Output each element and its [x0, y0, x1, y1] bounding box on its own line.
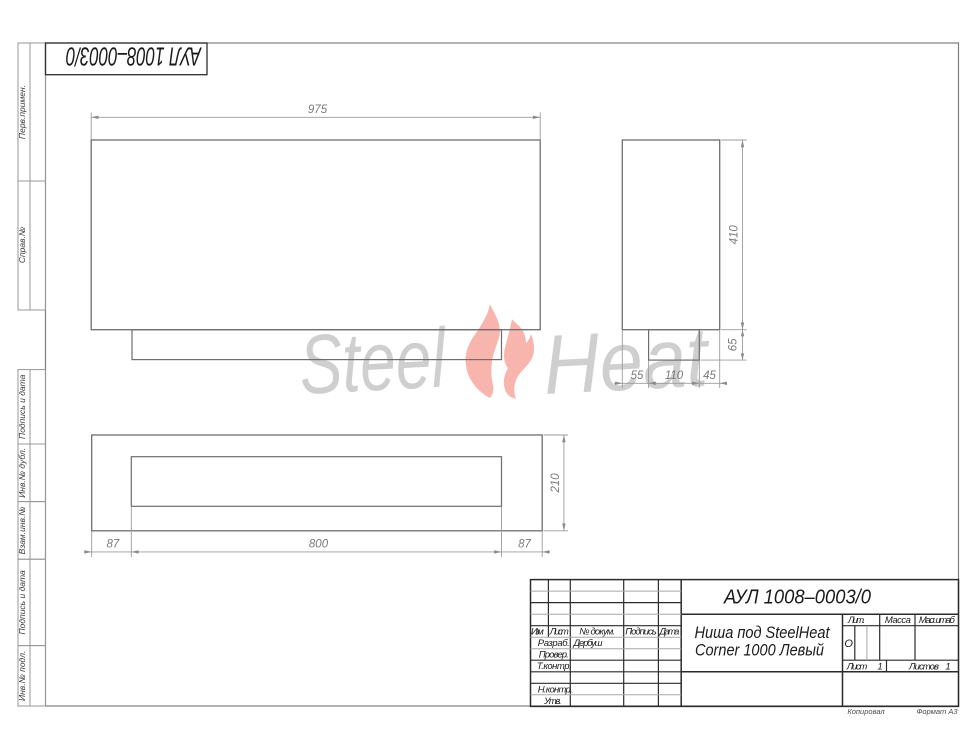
svg-text:1: 1 [877, 661, 882, 672]
svg-text:210: 210 [550, 473, 562, 494]
svg-text:Т.контр.: Т.контр. [537, 661, 572, 672]
svg-text:55: 55 [631, 370, 644, 382]
svg-text:Лист: Лист [549, 627, 569, 638]
svg-text:Дербуш: Дербуш [573, 638, 603, 649]
svg-text:87: 87 [107, 539, 120, 551]
svg-text:Лит.: Лит. [847, 615, 865, 626]
svg-text:Листов: Листов [908, 661, 939, 672]
svg-text:Масса: Масса [885, 615, 911, 626]
svg-text:Steel: Steel [297, 310, 449, 412]
svg-text:800: 800 [309, 539, 329, 551]
svg-text:975: 975 [308, 104, 328, 116]
svg-text:О: О [844, 638, 853, 650]
svg-text:№ докум.: № докум. [579, 627, 615, 638]
svg-text:Разраб.: Разраб. [538, 638, 570, 649]
svg-text:87: 87 [518, 539, 531, 551]
svg-text:Лист: Лист [846, 661, 868, 672]
svg-text:Перв.примен.: Перв.примен. [17, 85, 27, 139]
svg-text:Подпись и дата: Подпись и дата [17, 374, 27, 439]
svg-text:АУЛ 1008–0003/0: АУЛ 1008–0003/0 [66, 42, 203, 72]
svg-text:65: 65 [728, 338, 740, 351]
svg-text:410: 410 [729, 225, 741, 245]
svg-text:Н.контр.: Н.контр. [538, 684, 573, 695]
svg-text:Ниша под SteelHeat: Ниша под SteelHeat [695, 624, 831, 642]
svg-text:АУЛ 1008–0003/0: АУЛ 1008–0003/0 [722, 586, 871, 609]
svg-text:110: 110 [665, 370, 684, 382]
svg-text:Провер.: Провер. [539, 650, 569, 661]
svg-text:1: 1 [945, 661, 950, 672]
svg-text:Подпись и дата: Подпись и дата [17, 570, 27, 635]
svg-text:Дата: Дата [658, 627, 679, 638]
svg-text:Формат А3: Формат А3 [916, 707, 958, 716]
svg-text:Изм.: Изм. [531, 627, 544, 638]
svg-text:Масштаб: Масштаб [919, 615, 956, 626]
svg-text:Копировал: Копировал [847, 707, 885, 716]
svg-text:Инв.№ дубл.: Инв.№ дубл. [17, 448, 27, 498]
svg-text:Подпись: Подпись [625, 627, 657, 638]
svg-text:Corner 1000 Левый: Corner 1000 Левый [695, 642, 824, 660]
svg-text:45: 45 [703, 370, 716, 382]
svg-text:Справ.№: Справ.№ [17, 227, 27, 263]
svg-text:Инв.№ подл.: Инв.№ подл. [17, 651, 27, 701]
svg-text:Утв.: Утв. [543, 696, 562, 707]
svg-text:Взам.инв.№: Взам.инв.№ [17, 506, 27, 554]
